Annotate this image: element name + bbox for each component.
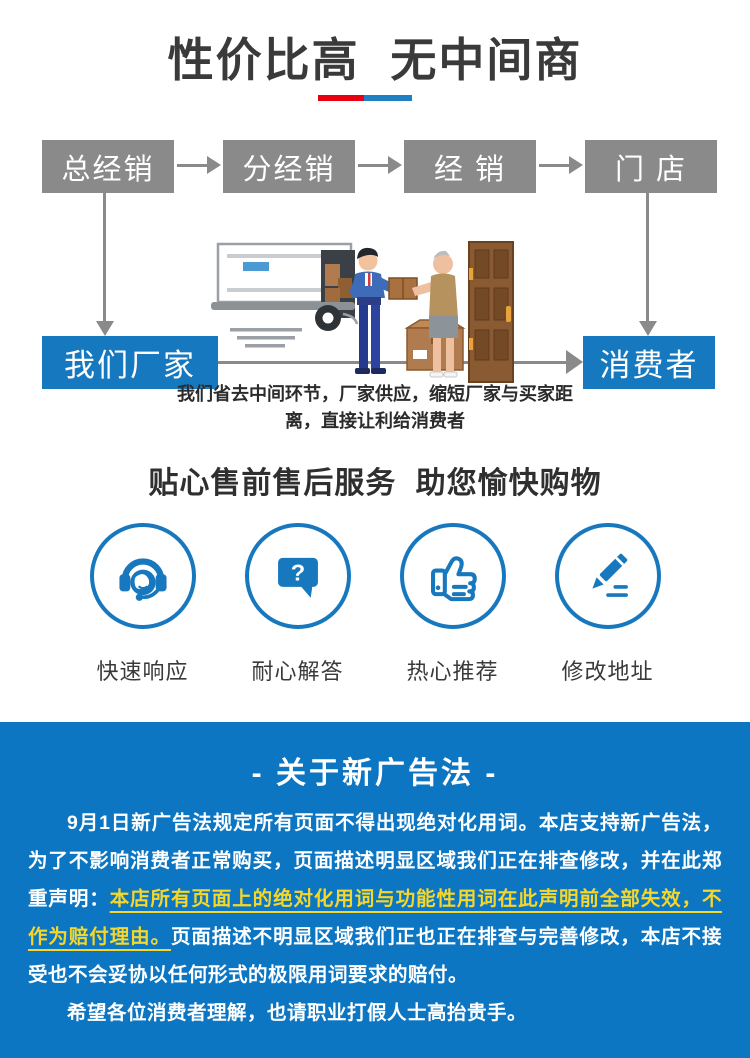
headset-icon <box>90 523 196 629</box>
arrow-down-icon <box>96 321 114 336</box>
ad-law-paragraph-1: 9月1日新广告法规定所有页面不得出现绝对化用词。本店支持新广告法，为了不影响消费… <box>28 804 722 994</box>
flow-caption: 我们省去中间环节，厂家供应，缩短厂家与买家距 离，直接让利给消费者 <box>140 381 610 435</box>
page-title: 性价比高 无中间商 <box>0 24 750 90</box>
arrow-right-icon <box>539 164 571 167</box>
promo-page: 性价比高 无中间商 总经销 分经销 经 销 门 店 我们厂家 消费者 <box>0 0 750 1058</box>
question-mark-glyph: ? <box>290 560 304 586</box>
service-label-fast-response: 快速响应 <box>96 654 188 686</box>
service-item-recommend: 热心推荐 <box>375 523 530 686</box>
ad-law-paragraph-2: 希望各位消费者理解，也请职业打假人士高抬贵手。 <box>28 994 722 1032</box>
delivery-truck-illustration-svg <box>185 228 530 386</box>
service-label-change-address: 修改地址 <box>561 654 653 686</box>
flow-box-general-distributor: 总经销 <box>42 140 174 193</box>
service-item-fast-response: 快速响应 <box>65 523 220 686</box>
service-section-title: 贴心售前售后服务 助您愉快购物 <box>0 458 750 502</box>
service-label-patient-answers: 耐心解答 <box>251 654 343 686</box>
arrow-right-icon <box>358 164 390 167</box>
ad-law-notice-body: 9月1日新广告法规定所有页面不得出现绝对化用词。本店支持新广告法，为了不影响消费… <box>28 804 722 1032</box>
service-label-recommend: 热心推荐 <box>406 654 498 686</box>
arrow-right-icon <box>177 164 209 167</box>
arrow-down-icon <box>103 193 106 321</box>
delivery-illustration <box>185 228 530 386</box>
flow-caption-line1: 我们省去中间环节，厂家供应，缩短厂家与买家距 <box>140 381 610 408</box>
service-item-change-address: 修改地址 <box>530 523 685 686</box>
underline-blue-segment <box>364 95 412 101</box>
ad-law-notice-section: - 关于新广告法 - 9月1日新广告法规定所有页面不得出现绝对化用词。本店支持新… <box>0 722 750 1058</box>
thumb-up-icon <box>400 523 506 629</box>
arrow-right-icon <box>388 156 402 174</box>
arrow-right-icon <box>207 156 221 174</box>
factory-to-consumer-arrowhead <box>566 350 583 374</box>
flow-box-store: 门 店 <box>585 140 717 193</box>
ad-law-notice-title: - 关于新广告法 - <box>0 748 750 792</box>
flow-box-sub-distributor: 分经销 <box>223 140 355 193</box>
question-bubble-icon: ? <box>245 523 351 629</box>
flow-caption-line2: 离，直接让利给消费者 <box>140 408 610 435</box>
arrow-right-icon <box>569 156 583 174</box>
arrow-down-icon <box>639 321 657 336</box>
flow-box-dealer: 经 销 <box>404 140 536 193</box>
underline-red-segment <box>318 95 364 101</box>
service-item-patient-answers: ? 耐心解答 <box>220 523 375 686</box>
service-row: 快速响应 ? 耐心解答 <box>65 523 685 686</box>
arrow-down-icon <box>646 193 649 321</box>
title-underline <box>318 95 412 101</box>
pencil-icon <box>555 523 661 629</box>
